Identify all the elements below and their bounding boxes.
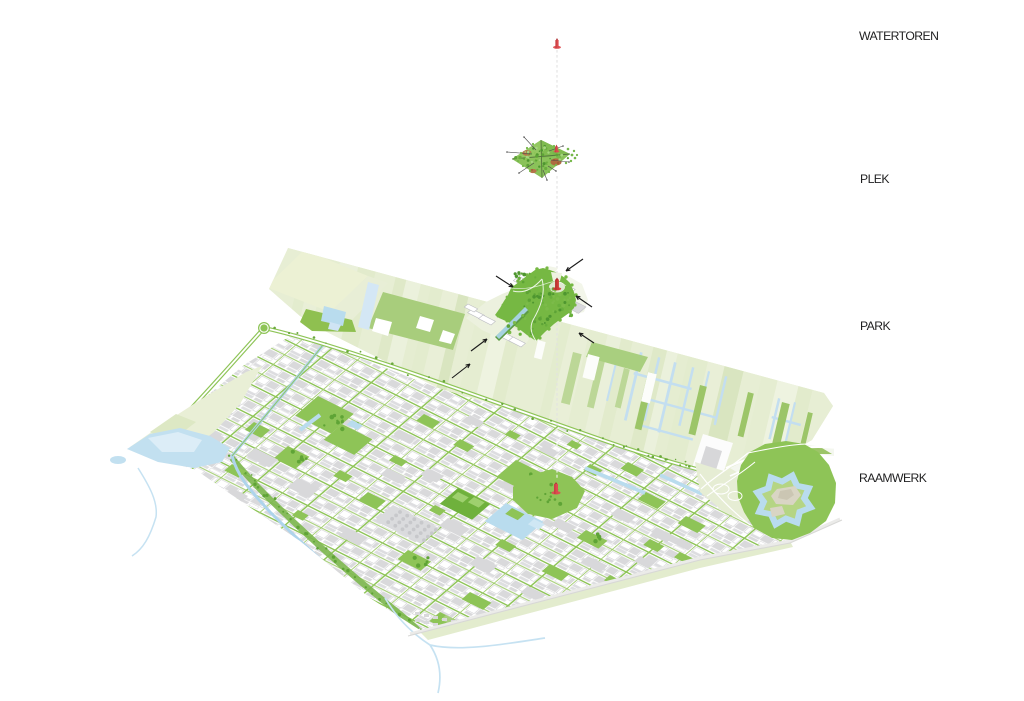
svg-text:RAAMWERK: RAAMWERK <box>859 471 927 485</box>
svg-text:PLEK: PLEK <box>860 172 889 186</box>
svg-text:WATERTOREN: WATERTOREN <box>859 29 938 43</box>
svg-text:PARK: PARK <box>860 319 891 333</box>
